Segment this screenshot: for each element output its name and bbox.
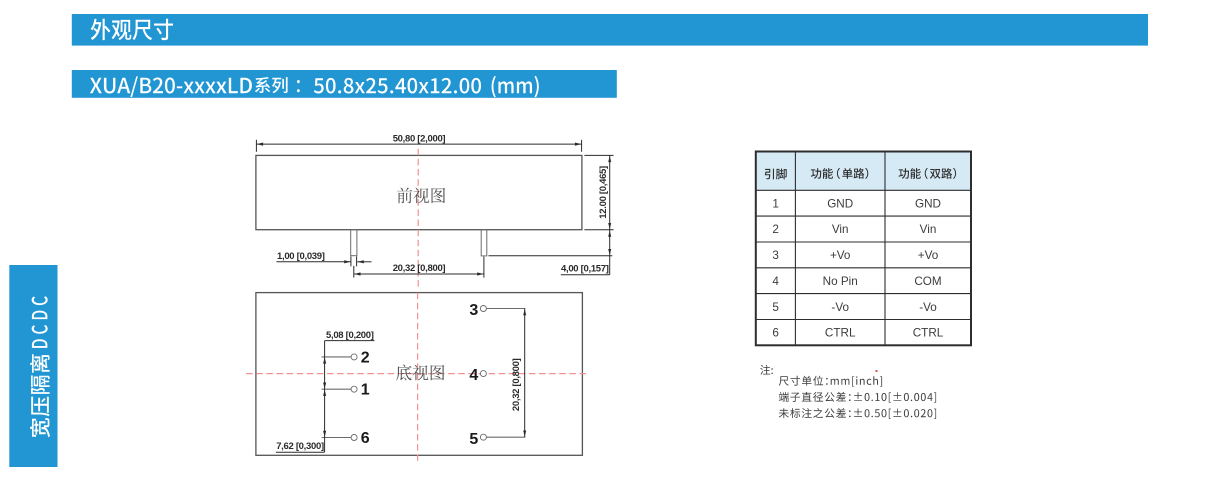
svg-text:4: 4 [469,367,478,384]
svg-text:3: 3 [469,302,478,319]
svg-text:12.00 [0,465]: 12.00 [0,465] [598,166,609,219]
svg-text:CTRL: CTRL [825,327,856,340]
svg-text:5: 5 [469,431,478,448]
svg-text:COM: COM [914,275,941,288]
svg-text:6: 6 [361,430,370,447]
svg-text:GND: GND [827,197,853,210]
svg-text:3: 3 [772,249,779,262]
svg-text:GND: GND [915,197,941,210]
svg-text:No Pin: No Pin [823,275,858,288]
svg-text:Vin: Vin [832,223,849,236]
svg-text:5,08 [0,200]: 5,08 [0,200] [326,330,374,341]
svg-text:20,32 [0,800]: 20,32 [0,800] [393,263,446,274]
svg-text:2: 2 [361,349,370,366]
svg-text:4,00 [0,157]: 4,00 [0,157] [561,264,609,275]
svg-text:4: 4 [772,275,779,288]
svg-text:+Vo: +Vo [830,249,851,262]
svg-text:+Vo: +Vo [918,249,939,262]
svg-text:-Vo: -Vo [831,301,849,314]
svg-text:20,32 [0,800]: 20,32 [0,800] [511,358,522,411]
svg-text:1,00 [0,039]: 1,00 [0,039] [277,251,325,262]
svg-text:6: 6 [772,327,779,340]
svg-text:2: 2 [772,223,779,236]
svg-text:CTRL: CTRL [913,327,944,340]
svg-text:1: 1 [361,382,370,399]
svg-text:1: 1 [772,197,779,210]
svg-text:5: 5 [772,301,779,314]
svg-text:-Vo: -Vo [919,301,937,314]
svg-text:7,62 [0,300]: 7,62 [0,300] [276,441,324,452]
svg-text:50,80 [2,000]: 50,80 [2,000] [393,134,446,145]
svg-text:Vin: Vin [920,223,937,236]
